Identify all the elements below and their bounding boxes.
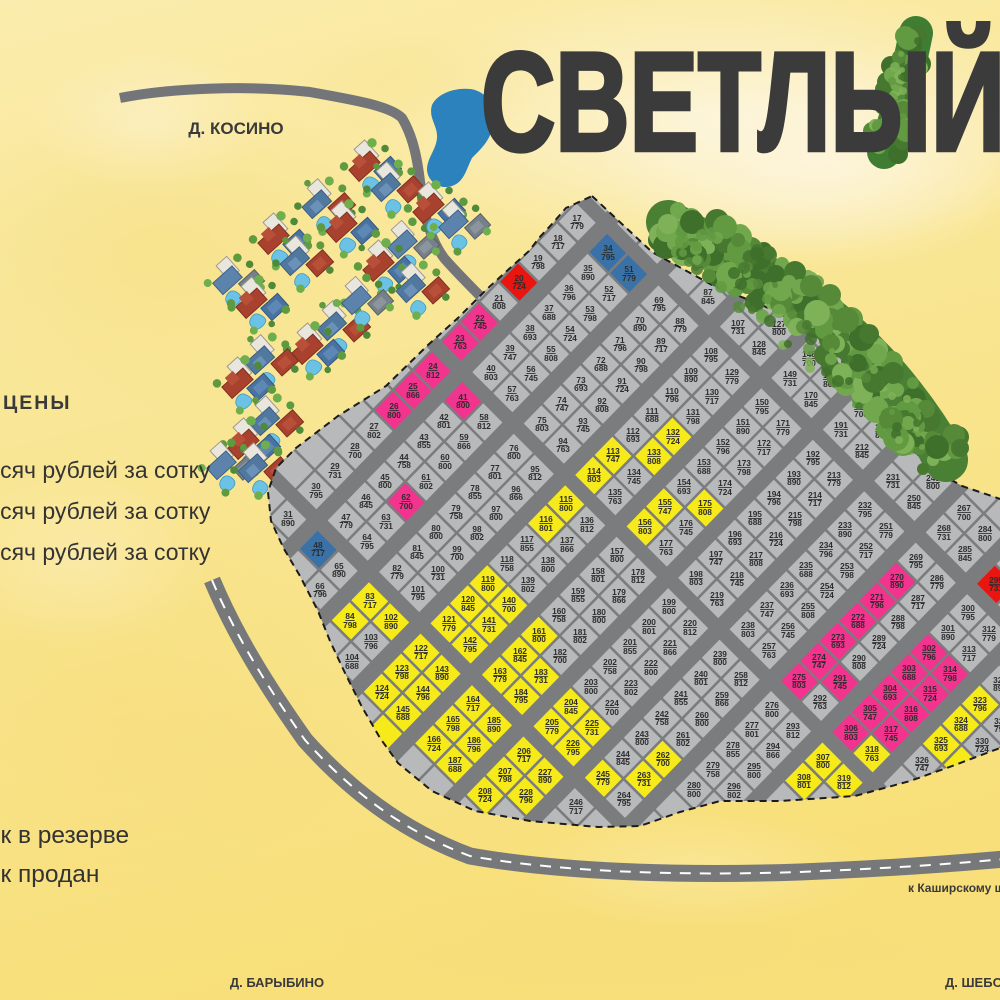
svg-text:803: 803 — [587, 474, 601, 484]
svg-text:795: 795 — [360, 541, 374, 551]
svg-text:795: 795 — [309, 490, 323, 500]
svg-text:802: 802 — [470, 532, 484, 542]
svg-text:Д. ШЕБОЧЕЕВО: Д. ШЕБОЧЕЕВО — [945, 975, 1000, 990]
svg-text:890: 890 — [838, 529, 852, 539]
svg-text:845: 845 — [907, 501, 921, 511]
svg-text:779: 779 — [622, 273, 636, 283]
svg-text:688: 688 — [594, 363, 608, 373]
svg-text:803: 803 — [638, 526, 652, 536]
svg-text:800: 800 — [765, 709, 779, 719]
svg-text:800: 800 — [378, 480, 392, 490]
svg-text:758: 758 — [500, 563, 514, 573]
svg-text:688: 688 — [448, 764, 462, 774]
svg-text:731: 731 — [431, 572, 445, 582]
svg-text:866: 866 — [406, 390, 420, 400]
svg-text:845: 845 — [855, 450, 869, 460]
svg-text:866: 866 — [663, 647, 677, 657]
svg-text:779: 779 — [673, 324, 687, 334]
svg-text:812: 812 — [734, 678, 748, 688]
svg-text:к Каширскому шоссе: к Каширскому шоссе — [908, 881, 1000, 895]
svg-text:758: 758 — [655, 717, 669, 727]
svg-text:724: 724 — [375, 691, 389, 701]
svg-text:700: 700 — [399, 501, 413, 511]
svg-text:693: 693 — [831, 640, 845, 650]
svg-text:724: 724 — [923, 693, 937, 703]
svg-text:802: 802 — [521, 584, 535, 594]
svg-text:717: 717 — [911, 601, 925, 611]
svg-text:808: 808 — [492, 301, 506, 311]
svg-text:758: 758 — [706, 769, 720, 779]
svg-text:796: 796 — [870, 600, 884, 610]
svg-text:812: 812 — [786, 730, 800, 740]
svg-text:693: 693 — [574, 383, 588, 393]
svg-text:866: 866 — [509, 492, 523, 502]
svg-text:758: 758 — [603, 666, 617, 676]
svg-text:800: 800 — [772, 327, 786, 337]
svg-text:763: 763 — [710, 598, 724, 608]
svg-text:796: 796 — [313, 589, 327, 599]
svg-text:717: 717 — [517, 754, 531, 764]
svg-text:798: 798 — [343, 620, 357, 630]
svg-text:800: 800 — [429, 531, 443, 541]
svg-text:745: 745 — [833, 681, 847, 691]
svg-text:803: 803 — [792, 680, 806, 690]
svg-text:795: 795 — [755, 406, 769, 416]
svg-text:812: 812 — [631, 575, 645, 585]
svg-text:855: 855 — [726, 749, 740, 759]
svg-text:700: 700 — [348, 450, 362, 460]
svg-text:795: 795 — [463, 644, 477, 654]
svg-text:801: 801 — [797, 780, 811, 790]
svg-text:795: 795 — [909, 560, 923, 570]
svg-text:688: 688 — [748, 517, 762, 527]
svg-text:800: 800 — [481, 583, 495, 593]
svg-text:808: 808 — [749, 558, 763, 568]
svg-text:796: 796 — [716, 446, 730, 456]
svg-text:845: 845 — [513, 654, 527, 664]
svg-text:717: 717 — [569, 806, 583, 816]
svg-text:747: 747 — [863, 712, 877, 722]
svg-text:796: 796 — [973, 703, 987, 713]
svg-text:724: 724 — [975, 744, 989, 754]
svg-text:798: 798 — [583, 313, 597, 323]
svg-text:890: 890 — [487, 724, 501, 734]
svg-text:717: 717 — [466, 703, 480, 713]
svg-text:700: 700 — [957, 512, 971, 522]
svg-text:798: 798 — [943, 673, 957, 683]
svg-text:747: 747 — [760, 609, 774, 619]
svg-text:700: 700 — [450, 552, 464, 562]
svg-text:798: 798 — [395, 671, 409, 681]
svg-text:800: 800 — [532, 634, 546, 644]
svg-text:724: 724 — [769, 538, 783, 548]
svg-text:779: 779 — [596, 777, 610, 787]
svg-text:866: 866 — [560, 544, 574, 554]
svg-text:800: 800 — [559, 503, 573, 513]
svg-text:795: 795 — [566, 747, 580, 757]
svg-text:763: 763 — [453, 341, 467, 351]
svg-text:802: 802 — [727, 790, 741, 800]
svg-text:798: 798 — [994, 724, 1000, 734]
svg-text:845: 845 — [564, 706, 578, 716]
svg-text:796: 796 — [416, 692, 430, 702]
svg-text:802: 802 — [676, 738, 690, 748]
svg-text:795: 795 — [411, 592, 425, 602]
svg-text:796: 796 — [767, 497, 781, 507]
svg-text:845: 845 — [701, 296, 715, 306]
svg-text:тысяч рублей за сотку: тысяч рублей за сотку — [0, 498, 211, 524]
svg-text:795: 795 — [514, 695, 528, 705]
svg-text:724: 724 — [615, 384, 629, 394]
svg-text:745: 745 — [524, 373, 538, 383]
svg-text:724: 724 — [718, 487, 732, 497]
svg-text:801: 801 — [642, 626, 656, 636]
svg-text:717: 717 — [363, 600, 377, 610]
svg-text:700: 700 — [605, 707, 619, 717]
svg-text:731: 731 — [637, 778, 651, 788]
svg-text:700: 700 — [656, 758, 670, 768]
svg-text:СВЕТЛЫЙ: СВЕТЛЫЙ — [481, 23, 1000, 180]
svg-text:Д. БАРЫБИНО: Д. БАРЫБИНО — [230, 975, 324, 990]
svg-text:731: 731 — [534, 675, 548, 685]
svg-text:796: 796 — [922, 652, 936, 662]
svg-text:747: 747 — [915, 763, 929, 773]
svg-text:800: 800 — [713, 657, 727, 667]
svg-text:798: 798 — [840, 570, 854, 580]
svg-text:798: 798 — [788, 518, 802, 528]
svg-text:779: 779 — [776, 427, 790, 437]
svg-text:747: 747 — [555, 403, 569, 413]
svg-text:800: 800 — [489, 512, 503, 522]
svg-text:890: 890 — [993, 683, 1000, 693]
svg-text:796: 796 — [665, 394, 679, 404]
svg-text:795: 795 — [806, 457, 820, 467]
svg-text:803: 803 — [535, 423, 549, 433]
svg-text:800: 800 — [816, 760, 830, 770]
svg-text:688: 688 — [396, 712, 410, 722]
svg-text:763: 763 — [659, 547, 673, 557]
svg-text:845: 845 — [804, 399, 818, 409]
svg-text:717: 717 — [808, 498, 822, 508]
svg-text:890: 890 — [890, 580, 904, 590]
svg-text:800: 800 — [592, 615, 606, 625]
svg-text:717: 717 — [962, 653, 976, 663]
svg-text:731: 731 — [482, 624, 496, 634]
svg-text:758: 758 — [552, 614, 566, 624]
svg-text:688: 688 — [954, 723, 968, 733]
svg-text:800: 800 — [635, 737, 649, 747]
svg-text:802: 802 — [419, 481, 433, 491]
svg-text:800: 800 — [644, 667, 658, 677]
svg-text:724: 724 — [666, 436, 680, 446]
svg-text:798: 798 — [737, 467, 751, 477]
svg-text:801: 801 — [745, 729, 759, 739]
svg-text:855: 855 — [674, 697, 688, 707]
svg-text:763: 763 — [813, 701, 827, 711]
svg-text:724: 724 — [478, 794, 492, 804]
svg-text:779: 779 — [545, 726, 559, 736]
svg-text:890: 890 — [384, 621, 398, 631]
svg-text:855: 855 — [520, 543, 534, 553]
svg-text:803: 803 — [484, 372, 498, 382]
svg-text:779: 779 — [390, 571, 404, 581]
svg-text:747: 747 — [658, 506, 672, 516]
svg-text:745: 745 — [473, 321, 487, 331]
svg-text:798: 798 — [498, 774, 512, 784]
svg-text:800: 800 — [541, 564, 555, 574]
svg-text:763: 763 — [556, 444, 570, 454]
svg-text:798: 798 — [531, 261, 545, 271]
svg-text:890: 890 — [538, 775, 552, 785]
svg-text:745: 745 — [781, 630, 795, 640]
svg-text:800: 800 — [584, 686, 598, 696]
svg-text:779: 779 — [930, 581, 944, 591]
svg-text:747: 747 — [503, 352, 517, 362]
svg-text:724: 724 — [563, 333, 577, 343]
svg-text:779: 779 — [879, 530, 893, 540]
svg-text:808: 808 — [801, 610, 815, 620]
svg-text:688: 688 — [851, 620, 865, 630]
svg-text:890: 890 — [684, 374, 698, 384]
svg-text:800: 800 — [507, 451, 521, 461]
svg-text:812: 812 — [426, 370, 440, 380]
svg-text:779: 779 — [827, 478, 841, 488]
svg-text:801: 801 — [488, 471, 502, 481]
svg-text:890: 890 — [435, 672, 449, 682]
svg-text:800: 800 — [438, 461, 452, 471]
svg-text:890: 890 — [736, 426, 750, 436]
svg-text:693: 693 — [728, 537, 742, 547]
svg-text:758: 758 — [397, 460, 411, 470]
svg-text:758: 758 — [449, 511, 463, 521]
svg-text:812: 812 — [580, 524, 594, 534]
svg-text:803: 803 — [689, 577, 703, 587]
svg-text:693: 693 — [780, 589, 794, 599]
svg-text:800: 800 — [747, 770, 761, 780]
svg-text:890: 890 — [332, 569, 346, 579]
svg-text:796: 796 — [613, 343, 627, 353]
svg-text:747: 747 — [812, 660, 826, 670]
svg-text:участок продан: участок продан — [0, 861, 99, 888]
svg-text:890: 890 — [581, 272, 595, 282]
svg-text:855: 855 — [468, 491, 482, 501]
svg-text:724: 724 — [872, 641, 886, 651]
svg-text:ЦЕНЫ: ЦЕНЫ — [3, 392, 71, 414]
svg-text:745: 745 — [884, 733, 898, 743]
svg-text:801: 801 — [437, 420, 451, 430]
svg-text:845: 845 — [410, 551, 424, 561]
svg-text:801: 801 — [694, 677, 708, 687]
svg-text:812: 812 — [477, 421, 491, 431]
svg-text:763: 763 — [865, 753, 879, 763]
svg-text:779: 779 — [442, 623, 456, 633]
svg-text:802: 802 — [573, 635, 587, 645]
svg-text:808: 808 — [595, 404, 609, 414]
svg-text:724: 724 — [427, 743, 441, 753]
svg-text:801: 801 — [591, 574, 605, 584]
svg-text:688: 688 — [645, 414, 659, 424]
svg-text:779: 779 — [339, 520, 353, 530]
svg-text:724: 724 — [820, 590, 834, 600]
svg-text:731: 731 — [937, 532, 951, 542]
svg-text:745: 745 — [730, 578, 744, 588]
svg-text:693: 693 — [523, 332, 537, 342]
svg-text:855: 855 — [417, 440, 431, 450]
svg-text:808: 808 — [544, 353, 558, 363]
svg-text:717: 717 — [859, 550, 873, 560]
svg-text:808: 808 — [852, 661, 866, 671]
svg-text:795: 795 — [617, 798, 631, 808]
svg-text:796: 796 — [819, 549, 833, 559]
svg-text:866: 866 — [612, 595, 626, 605]
svg-text:717: 717 — [602, 293, 616, 303]
svg-text:796: 796 — [562, 292, 576, 302]
svg-text:866: 866 — [715, 698, 729, 708]
svg-text:845: 845 — [616, 757, 630, 767]
svg-text:801: 801 — [539, 523, 553, 533]
svg-text:731: 731 — [731, 326, 745, 336]
svg-text:688: 688 — [345, 661, 359, 671]
svg-text:717: 717 — [705, 396, 719, 406]
svg-text:724: 724 — [512, 281, 526, 291]
svg-text:845: 845 — [461, 603, 475, 613]
svg-text:779: 779 — [493, 674, 507, 684]
svg-text:747: 747 — [606, 454, 620, 464]
svg-text:731: 731 — [328, 470, 342, 480]
svg-text:845: 845 — [359, 500, 373, 510]
svg-text:796: 796 — [467, 744, 481, 754]
svg-text:731: 731 — [783, 378, 797, 388]
svg-text:808: 808 — [647, 456, 661, 466]
svg-text:688: 688 — [697, 466, 711, 476]
svg-text:763: 763 — [505, 393, 519, 403]
svg-text:800: 800 — [610, 554, 624, 564]
svg-text:795: 795 — [704, 354, 718, 364]
svg-text:800: 800 — [662, 606, 676, 616]
svg-text:779: 779 — [725, 376, 739, 386]
svg-text:798: 798 — [686, 416, 700, 426]
svg-text:731: 731 — [585, 727, 599, 737]
svg-text:890: 890 — [941, 632, 955, 642]
svg-text:855: 855 — [571, 594, 585, 604]
svg-text:693: 693 — [883, 692, 897, 702]
svg-text:688: 688 — [542, 312, 556, 322]
svg-text:808: 808 — [698, 507, 712, 517]
svg-text:803: 803 — [844, 732, 858, 742]
svg-text:795: 795 — [858, 509, 872, 519]
svg-text:779: 779 — [982, 633, 996, 643]
svg-text:700: 700 — [553, 655, 567, 665]
svg-text:800: 800 — [456, 400, 470, 410]
svg-text:800: 800 — [978, 533, 992, 543]
svg-text:717: 717 — [551, 241, 565, 251]
svg-text:866: 866 — [766, 750, 780, 760]
svg-text:855: 855 — [623, 646, 637, 656]
svg-text:763: 763 — [608, 496, 622, 506]
svg-text:747: 747 — [709, 557, 723, 567]
svg-text:745: 745 — [679, 527, 693, 537]
svg-text:тысяч рублей за сотку: тысяч рублей за сотку — [0, 457, 211, 483]
svg-text:802: 802 — [367, 430, 381, 440]
svg-text:731: 731 — [886, 480, 900, 490]
svg-text:800: 800 — [926, 481, 940, 491]
svg-text:731: 731 — [989, 583, 1000, 593]
svg-text:796: 796 — [519, 795, 533, 805]
svg-text:693: 693 — [626, 434, 640, 444]
svg-text:717: 717 — [757, 447, 771, 457]
svg-text:779: 779 — [570, 221, 584, 231]
svg-text:890: 890 — [787, 477, 801, 487]
svg-text:участок в резерве: участок в резерве — [0, 822, 129, 849]
svg-text:812: 812 — [683, 627, 697, 637]
svg-text:795: 795 — [961, 612, 975, 622]
svg-text:800: 800 — [687, 789, 701, 799]
svg-text:808: 808 — [904, 713, 918, 723]
svg-text:731: 731 — [834, 429, 848, 439]
svg-text:798: 798 — [446, 723, 460, 733]
svg-text:693: 693 — [934, 743, 948, 753]
svg-text:763: 763 — [762, 650, 776, 660]
svg-text:693: 693 — [677, 486, 691, 496]
svg-text:800: 800 — [695, 718, 709, 728]
svg-text:812: 812 — [528, 472, 542, 482]
svg-text:845: 845 — [752, 347, 766, 357]
svg-text:802: 802 — [624, 687, 638, 697]
svg-text:803: 803 — [741, 629, 755, 639]
svg-text:845: 845 — [958, 553, 972, 563]
svg-text:798: 798 — [891, 621, 905, 631]
svg-text:688: 688 — [799, 569, 813, 579]
svg-text:745: 745 — [576, 424, 590, 434]
svg-text:717: 717 — [311, 548, 325, 558]
svg-text:717: 717 — [414, 651, 428, 661]
svg-text:796: 796 — [364, 641, 378, 651]
svg-text:798: 798 — [634, 364, 648, 374]
svg-text:Д. КОСИНО: Д. КОСИНО — [188, 119, 283, 138]
svg-text:717: 717 — [654, 344, 668, 354]
svg-text:700: 700 — [502, 604, 516, 614]
svg-text:тысяч рублей за сотку: тысяч рублей за сотку — [0, 539, 211, 565]
svg-text:731: 731 — [379, 521, 393, 531]
svg-text:890: 890 — [633, 323, 647, 333]
svg-text:745: 745 — [627, 476, 641, 486]
svg-text:812: 812 — [837, 781, 851, 791]
svg-text:795: 795 — [652, 303, 666, 313]
svg-text:795: 795 — [601, 252, 615, 262]
svg-text:890: 890 — [281, 518, 295, 528]
svg-text:688: 688 — [902, 672, 916, 682]
svg-text:800: 800 — [387, 410, 401, 420]
svg-text:866: 866 — [457, 441, 471, 451]
